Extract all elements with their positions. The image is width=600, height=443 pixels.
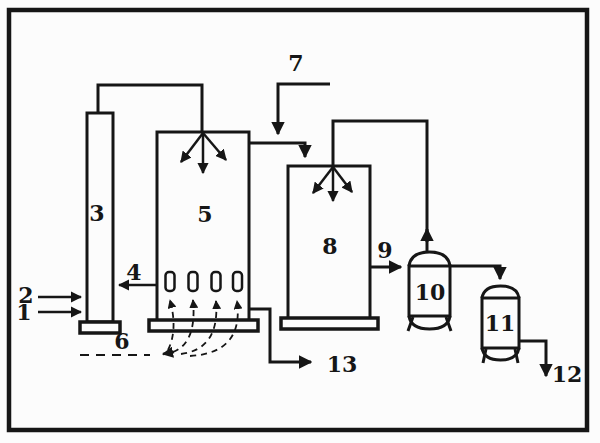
vessel-5-nozzles bbox=[166, 272, 243, 291]
label-12: 12 bbox=[552, 361, 583, 387]
vessel-5-spray-arrows bbox=[181, 133, 226, 173]
label-4: 4 bbox=[126, 259, 141, 285]
tank-11-top-dome bbox=[482, 286, 519, 298]
distributor-nozzle bbox=[166, 272, 175, 291]
label-9: 9 bbox=[377, 237, 392, 263]
label-11: 11 bbox=[485, 310, 516, 336]
vessel-8-spray-arrows bbox=[313, 167, 352, 201]
label-8: 8 bbox=[322, 233, 337, 259]
vessel-5-base bbox=[149, 320, 258, 331]
label-5: 5 bbox=[197, 201, 212, 227]
spray-arrow bbox=[203, 133, 226, 160]
tank-10-top-dome bbox=[409, 252, 450, 266]
pipe-tank10-to-tank11 bbox=[450, 266, 500, 279]
pipe-vessel5-to-vessel8 bbox=[249, 143, 305, 157]
pipe-12-outlet bbox=[519, 341, 546, 376]
process-flow-diagram: 1 2 3 4 5 6 7 8 9 10 11 12 13 bbox=[0, 0, 600, 443]
spray-arrow bbox=[333, 167, 352, 192]
vessel-8-base bbox=[281, 318, 378, 329]
distributor-nozzle bbox=[189, 272, 198, 291]
tank-11-bottom-dome bbox=[482, 348, 519, 360]
distributor-nozzle bbox=[212, 272, 221, 291]
diagram-canvas: 1 2 3 4 5 6 7 8 9 10 11 12 13 bbox=[0, 0, 600, 443]
feed-7-line bbox=[278, 84, 330, 134]
distributor-nozzle bbox=[233, 272, 242, 291]
label-3: 3 bbox=[89, 200, 104, 226]
label-13: 13 bbox=[327, 351, 358, 377]
spray-arrow bbox=[313, 167, 333, 193]
label-2: 2 bbox=[18, 282, 33, 308]
dashed-left-arrow bbox=[163, 352, 174, 354]
spray-arrow bbox=[181, 133, 203, 162]
tank-10-bottom-dome bbox=[409, 316, 450, 329]
label-6: 6 bbox=[114, 328, 129, 354]
label-7: 7 bbox=[288, 50, 303, 76]
label-10: 10 bbox=[415, 279, 446, 305]
